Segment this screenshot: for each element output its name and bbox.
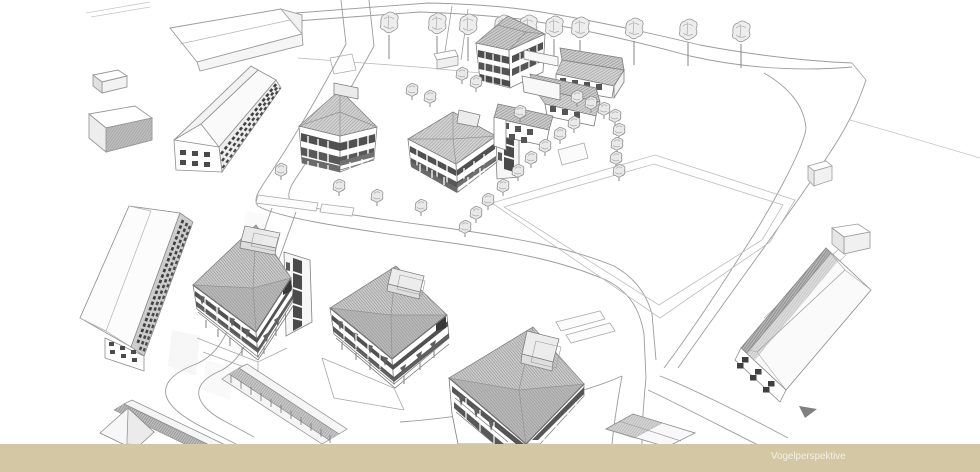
svg-text:Vogelperspektive: Vogelperspektive: [771, 451, 846, 462]
